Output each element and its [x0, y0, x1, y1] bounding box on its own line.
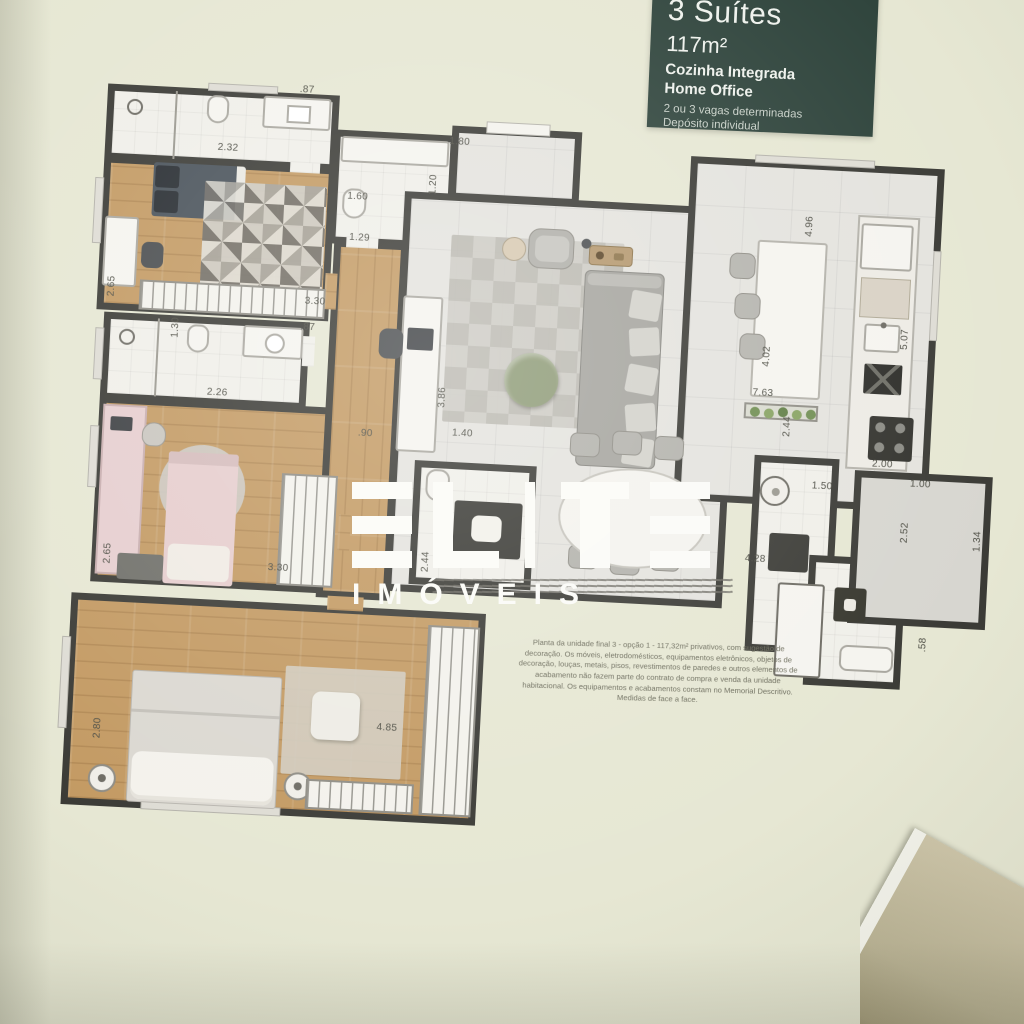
watermark-elite [352, 482, 731, 568]
suite3-wardrobe [418, 625, 480, 817]
dimension-label: .87 [299, 84, 314, 96]
dimension-label: 1.20 [427, 174, 439, 195]
dimension-label: 5.07 [899, 329, 911, 350]
dimension-label: 2.52 [899, 522, 911, 543]
dimension-label: 2.26 [207, 387, 228, 399]
door-opening [337, 514, 351, 551]
dimension-label: 2.44 [781, 416, 793, 437]
desk-chair [141, 422, 166, 447]
bathroom-vanity [242, 325, 304, 360]
dining-chair [653, 436, 684, 462]
dimension-label: 4.85 [376, 722, 397, 734]
dining-chair [612, 430, 643, 456]
desk-chair [141, 241, 164, 268]
watermark-letter [650, 482, 710, 568]
bathroom-counter [340, 136, 449, 168]
dimension-label: 2.65 [102, 542, 114, 563]
stove-burners [868, 416, 914, 462]
dimension-label: 1.30 [170, 317, 182, 338]
armchair [527, 228, 575, 270]
floor-plan: 2.32.872.653.301.302.26.872.653.302.804.… [19, 25, 1020, 874]
dimension-label: 4.96 [804, 216, 816, 237]
dimension-label: 2.80 [91, 717, 103, 738]
suite2-bed [162, 451, 239, 586]
dimension-label: 1.50 [812, 480, 833, 492]
door-opening [324, 273, 338, 310]
suite3-pouf [310, 691, 360, 741]
watermark-logo: IMÓVEIS [352, 482, 731, 612]
toilet [186, 324, 209, 353]
bathroom-vanity [262, 96, 332, 132]
service-sink [833, 587, 867, 623]
suite2-bench [116, 553, 163, 581]
refrigerator [860, 223, 914, 272]
watermark-letter [520, 482, 540, 568]
dimension-label: .87 [300, 321, 315, 333]
dimension-label: 2.65 [106, 275, 118, 296]
home-office-desk [395, 295, 443, 453]
dimension-label: 3.86 [436, 387, 448, 408]
washing-machine [839, 645, 894, 674]
door-opening [302, 336, 316, 367]
dimension-label: 3.30 [267, 562, 288, 574]
adjacent-photo-fragment [860, 800, 1024, 1024]
info-card: 3 Suítes 117m² Cozinha Integrada Home Of… [647, 0, 879, 137]
watermark-letter [561, 482, 629, 568]
desk-laptop [110, 416, 133, 431]
suite1-rug [200, 181, 327, 295]
suite3-bed [126, 670, 283, 810]
dimension-label: 1.60 [347, 191, 368, 203]
dimension-label: 4.28 [745, 553, 766, 565]
dimension-label: 2.32 [217, 142, 238, 154]
dimension-label: 7.63 [752, 387, 773, 399]
dimension-label: 4.02 [761, 346, 773, 367]
kitchen-sink [863, 323, 900, 353]
dimension-label: 2.00 [872, 458, 893, 470]
bar-stool [734, 293, 761, 320]
laundry-hamper [768, 533, 810, 573]
dimension-label: 1.34 [971, 531, 983, 552]
unit-area: 117m² [666, 31, 863, 66]
watermark-imoveis: IMÓVEIS [352, 578, 731, 612]
door-opening [290, 162, 320, 174]
cooktop [863, 363, 903, 395]
office-laptop [407, 327, 434, 350]
toilet [206, 95, 229, 124]
coffee-table [588, 245, 633, 267]
dimension-label: .90 [358, 428, 373, 440]
suite3-closet [305, 779, 414, 815]
disclaimer-text: Planta da unidade final 3 - opção 1 - 11… [516, 637, 800, 708]
dimension-label: 1.40 [452, 427, 473, 439]
watermark-letter [433, 482, 499, 568]
bar-stool [729, 252, 756, 279]
dining-chair [569, 432, 600, 458]
adjacent-photo [860, 828, 1024, 1024]
dimension-label: .58 [917, 637, 929, 652]
dimension-label: 1.80 [449, 136, 470, 148]
watermark-letter [352, 482, 412, 568]
office-chair [378, 328, 404, 359]
dimension-label: 1.29 [349, 232, 370, 244]
unit-title: 3 Suítes [667, 0, 864, 36]
dimension-label: 1.00 [910, 479, 931, 491]
kitchen-island [750, 240, 828, 400]
kitchen-cabinet [859, 277, 911, 320]
dimension-label: 3.30 [304, 296, 325, 308]
